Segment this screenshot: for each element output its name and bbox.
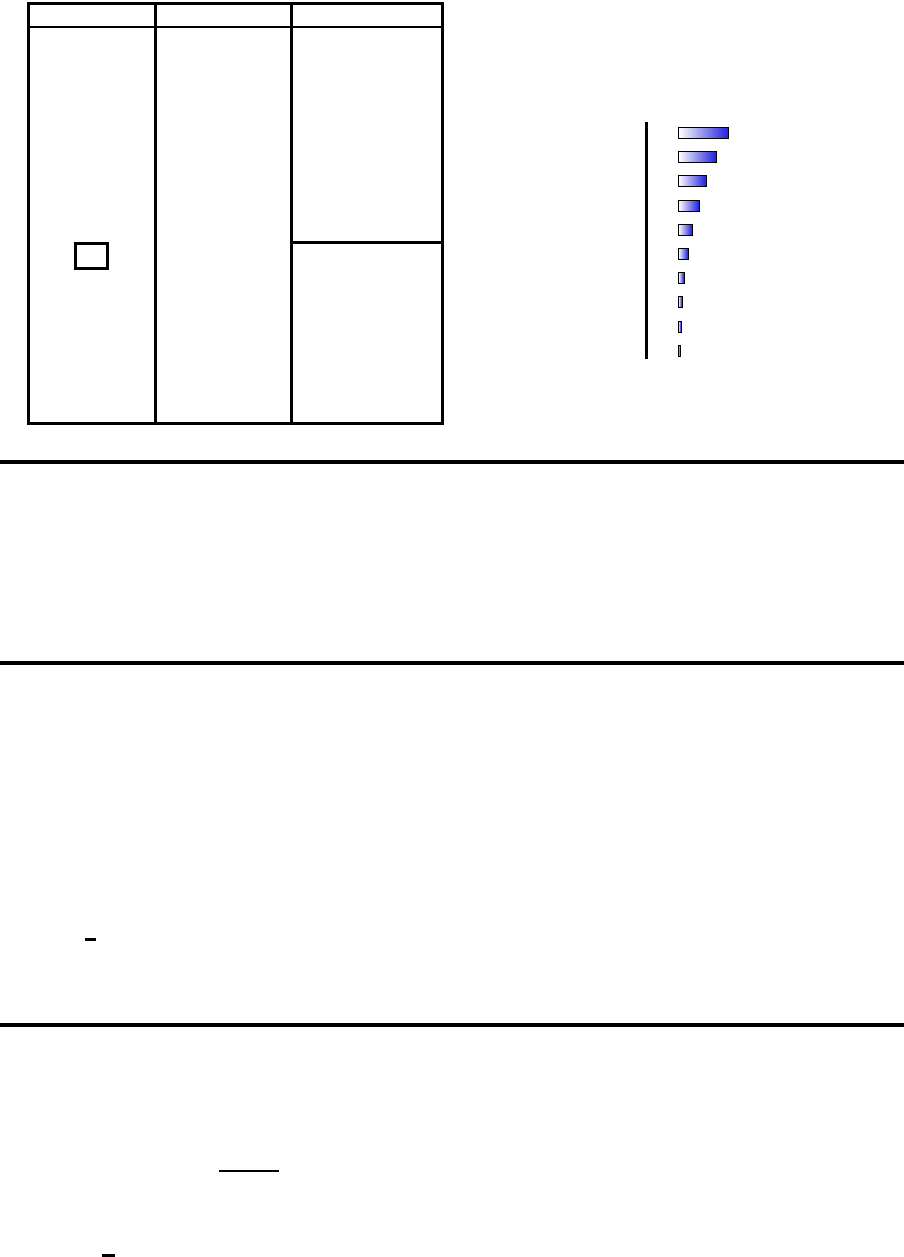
- section-rule-3: [0, 1023, 904, 1027]
- section-rule-1: [0, 460, 904, 464]
- checkbox-icon: [74, 242, 109, 270]
- bar-1: [678, 127, 729, 139]
- bar-10: [678, 345, 681, 357]
- dash-mark-1: [85, 938, 96, 941]
- section-rule-2: [0, 661, 904, 665]
- underline-mark: [219, 1170, 279, 1172]
- table-column-divider-2: [290, 5, 293, 422]
- bar-chart-bars: [678, 127, 788, 362]
- bar-8: [678, 296, 683, 308]
- form-table: [27, 2, 444, 425]
- bar-chart: [645, 122, 795, 362]
- bar-4: [678, 200, 700, 212]
- bar-5: [678, 224, 693, 236]
- bar-2: [678, 151, 717, 163]
- table-col3-row-divider: [293, 241, 441, 244]
- bar-6: [678, 248, 689, 260]
- bar-7: [678, 272, 685, 284]
- chart-vertical-axis-line: [645, 122, 648, 359]
- table-header-rule: [30, 26, 441, 28]
- bar-3: [678, 175, 707, 187]
- table-column-divider-1: [154, 5, 157, 422]
- bar-9: [678, 321, 682, 333]
